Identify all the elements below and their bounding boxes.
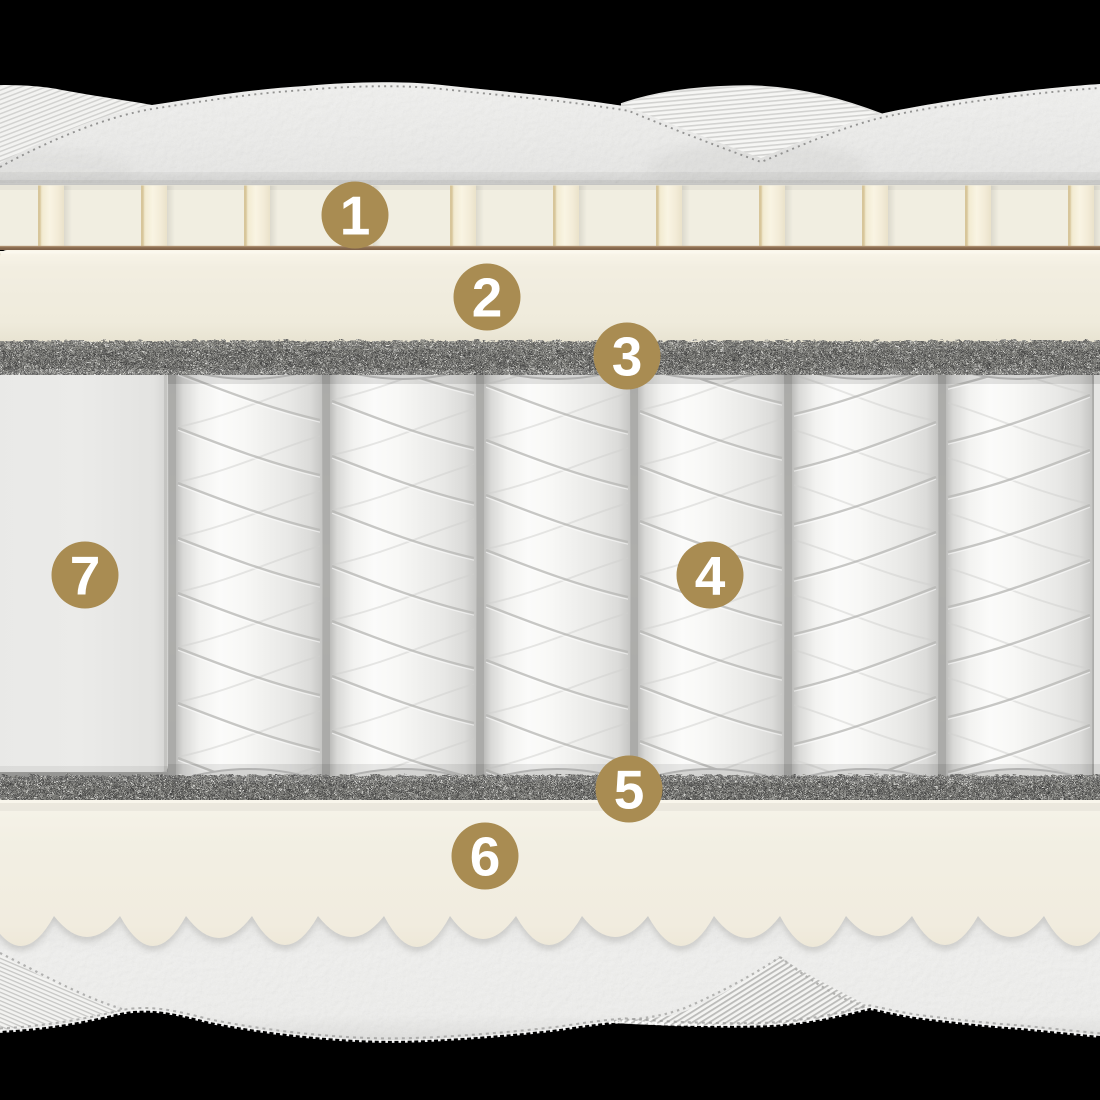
svg-text:4: 4: [695, 545, 726, 607]
svg-text:1: 1: [340, 185, 371, 247]
svg-text:7: 7: [70, 545, 101, 607]
svg-text:6: 6: [470, 826, 501, 888]
svg-text:2: 2: [472, 267, 503, 329]
svg-text:3: 3: [612, 326, 643, 388]
svg-text:5: 5: [614, 759, 645, 821]
